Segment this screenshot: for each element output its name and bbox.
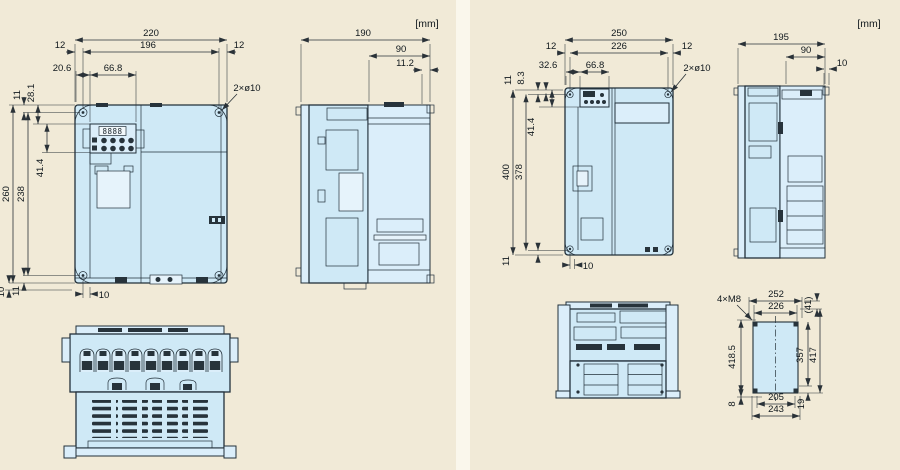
keypad-key-icon [92, 146, 97, 151]
right-unit-label: [mm] [857, 18, 880, 30]
dim-hole-span-v: 378 [514, 164, 525, 180]
dim-protrusion: 11.2 [396, 58, 414, 69]
dim-keypad-height: 41.4 [526, 118, 537, 137]
dim-bottom-a: 10 [0, 287, 7, 298]
dim-height-a: 418.5 [727, 345, 738, 369]
dim-bottom-margin: 11 [501, 256, 512, 266]
cable-clamps [80, 349, 222, 372]
keypad [580, 89, 609, 107]
dim-offset-19: 19 [796, 399, 807, 410]
keypad-display [583, 91, 595, 97]
left-bottom-view [62, 326, 238, 458]
dim-top-margin: 11 [503, 75, 514, 85]
left-unit-label: [mm] [415, 18, 438, 30]
right-side-view [734, 86, 829, 258]
top-cover-band [615, 103, 669, 123]
left-front-view: 8888 [75, 103, 227, 284]
dim-keypad-top: 28.1 [26, 84, 37, 103]
dim-hole-span: 226 [611, 41, 627, 52]
dim-bottom-b: 11 [11, 286, 22, 296]
mounting-screw-icon [753, 389, 758, 394]
dim-height-c: 417 [808, 347, 819, 363]
dim-height-b: 357 [795, 347, 806, 363]
panel-divider [456, 0, 470, 470]
dim-foot-offset: 10 [99, 290, 110, 301]
dim-protrusion: 10 [837, 58, 848, 69]
dim-offset-41: (41) [803, 297, 814, 314]
dim-keypad-offset: 32.6 [539, 60, 558, 71]
dim-hole-span-v: 238 [16, 186, 27, 202]
right-footprint-view [753, 316, 798, 401]
dim-depth: 190 [355, 28, 371, 39]
hole-note: 2×ø10 [683, 63, 710, 74]
dim-bottom-margin: 8 [727, 401, 738, 406]
right-bottom-view [556, 302, 680, 398]
screw-note: 4×M8 [717, 294, 741, 305]
keypad-display-value: 8888 [102, 127, 122, 136]
dim-foot-offset: 10 [583, 261, 594, 272]
hole-note: 2×ø10 [233, 83, 260, 94]
dim-hole-span: 226 [768, 301, 784, 312]
dim-overall-width: 220 [143, 28, 159, 39]
dim-cover-depth: 90 [801, 45, 812, 56]
dim-keypad-height: 41.4 [35, 159, 46, 178]
left-side-view [296, 102, 434, 289]
vent-grid [88, 400, 212, 438]
dim-hole-span: 196 [140, 40, 156, 51]
dim-outer-width-b: 243 [768, 404, 784, 415]
dimension-drawing: [mm] [0, 0, 900, 470]
dim-top-margin: 11 [12, 90, 23, 100]
side-connector-icon [209, 216, 225, 224]
mounting-screw-icon [794, 322, 799, 327]
dim-overall-height: 260 [1, 186, 12, 202]
dim-overall-width: 250 [611, 28, 627, 39]
dim-keypad-width: 66.8 [104, 63, 123, 74]
right-front-view [565, 88, 673, 255]
dim-margin-right: 12 [682, 41, 693, 52]
dim-margin-left: 12 [546, 41, 557, 52]
dim-margin-right: 12 [234, 40, 245, 51]
dim-span-205: 205 [768, 392, 784, 403]
dim-overall-height: 400 [501, 164, 512, 180]
dim-cover-depth: 90 [396, 44, 407, 55]
mounting-screw-icon [753, 322, 758, 327]
dim-depth: 195 [773, 32, 789, 43]
dimension-drawing-page: [mm] [0, 0, 900, 470]
dim-top-offset: 8.3 [516, 71, 527, 84]
dim-margin-left: 12 [55, 40, 66, 51]
dim-keypad-offset: 20.6 [53, 63, 72, 74]
keypad-key-icon [92, 138, 97, 143]
dim-outer-width: 252 [768, 289, 784, 300]
mounting-screw-icon [794, 389, 799, 394]
dim-keypad-width: 66.8 [586, 60, 605, 71]
keypad: 8888 [83, 124, 144, 153]
